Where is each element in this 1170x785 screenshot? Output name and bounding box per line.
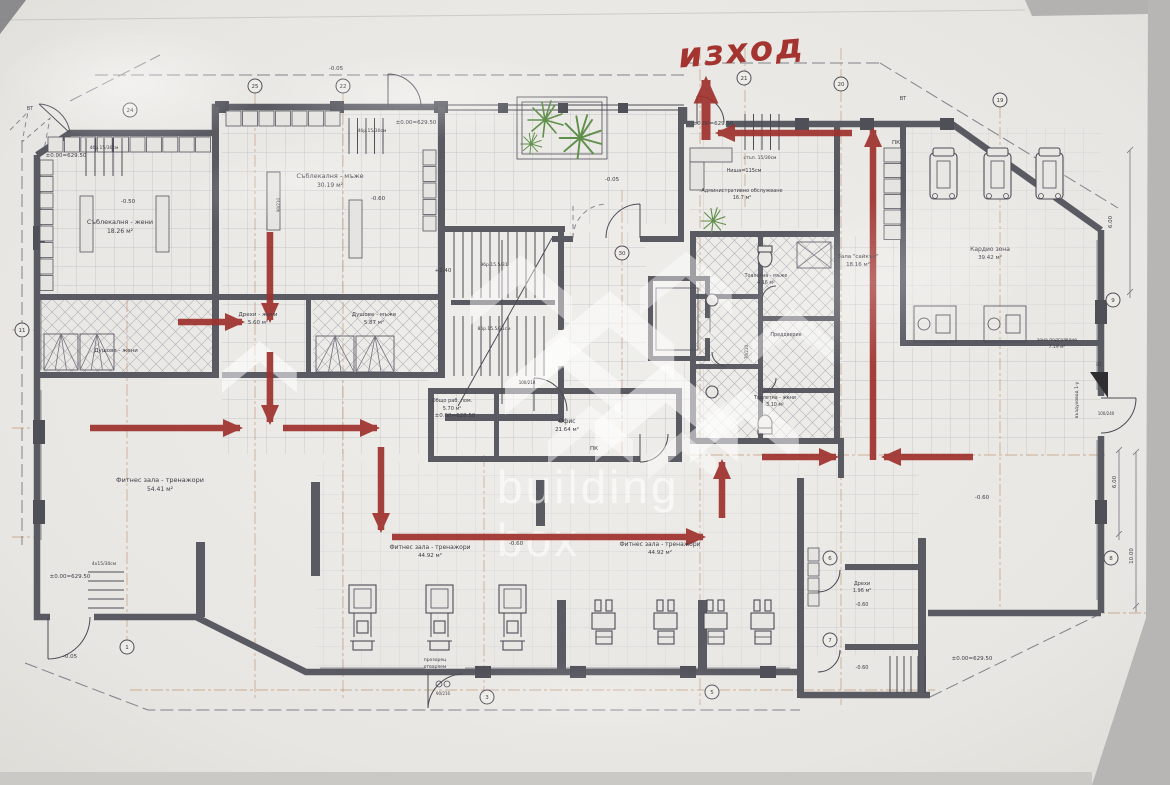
axis-bubble: 7 [823, 633, 837, 647]
locker-cell [808, 548, 819, 561]
locker-cell [40, 226, 53, 241]
bench [349, 200, 362, 258]
plan-label: ±0.00=628.50 [435, 413, 476, 419]
locker-cell [259, 111, 274, 126]
plan-label: 100/210 [519, 380, 536, 385]
plan-label: Душове - мъже [352, 312, 397, 318]
plan-label: 16.7 м² [733, 195, 752, 201]
locker-cell [243, 111, 258, 126]
axis-bubble-number: 7 [828, 638, 832, 644]
locker-cell [40, 193, 53, 208]
locker-cell [40, 160, 53, 175]
axis-bubble: 20 [834, 77, 848, 91]
locker-cell [423, 167, 436, 182]
plan-label: ПК [590, 446, 598, 452]
plan-label: Фитнес зала - тренажори [116, 476, 204, 484]
axis-bubble: 30 [615, 246, 629, 260]
plan-label: 100/240 [1098, 411, 1115, 416]
plan-label: 4х15/30см [92, 561, 116, 567]
plan-label: 8бр.15.5/31см [477, 326, 510, 332]
axis-bubble-number: 8 [1109, 556, 1113, 562]
plan-label: 5.70 м² [443, 406, 462, 412]
photo-background-edge [0, 772, 1092, 785]
plan-label: -0.05 [63, 654, 78, 660]
plan-label: стъп. 15/30см [744, 155, 777, 161]
plan-label: Дрехи - жени [239, 312, 278, 318]
plan-label: 9бр.15.5/31 [480, 262, 507, 268]
plan-label: 44.92 м² [418, 552, 442, 559]
plan-label: Ниша=115см [727, 168, 762, 174]
photo-background-edge [1025, 0, 1148, 16]
plan-label: Общо раб. пом. [432, 398, 473, 404]
plan-label: 10.00 [1129, 548, 1135, 564]
locker-cell [423, 200, 436, 215]
plan-label: 3.10 м² [766, 402, 784, 408]
locker-cell [808, 593, 819, 606]
plan-label: прозорец [424, 658, 446, 663]
axis-bubble: 6 [823, 551, 837, 565]
plan-label: ±0.00=629.50 [50, 574, 91, 580]
axis-bubble-number: 9 [1111, 298, 1115, 304]
plan-label: 54.41 м² [147, 486, 174, 493]
plan-label: Административно обслужване [701, 188, 782, 194]
plan-label: 18.26 м² [107, 228, 134, 235]
plan-label: 7.19 м² [1049, 344, 1066, 350]
axis-bubble: 1 [120, 640, 134, 654]
plan-label: -0.60 [975, 495, 990, 501]
axis-bubble: 21 [737, 71, 751, 85]
plan-label: 6.00 [1112, 475, 1118, 488]
watermark-text-line1: building [497, 461, 680, 513]
plan-label: Тоалетна - жени [753, 395, 796, 401]
locker-cell [48, 137, 63, 152]
locker-cell [40, 276, 53, 291]
locker-cell [196, 137, 211, 152]
plan-label: -0.50 [121, 199, 136, 205]
plan-label: -0.60 [856, 665, 869, 671]
plan-label: ±0.00=629.50 [693, 121, 734, 127]
floor-plan-photo: building box изход Съблекалня - жени18.2… [0, 0, 1170, 785]
locker-cell [808, 563, 819, 576]
locker-cell [40, 243, 53, 258]
plan-label: 1.96 м² [853, 588, 872, 594]
axis-bubble: 11 [15, 323, 29, 337]
axis-bubble-number: 21 [741, 76, 748, 82]
plan-label: Душове - жени [94, 348, 138, 354]
plan-label: ПК [892, 140, 900, 146]
plan-label: зона подгряване [1037, 338, 1077, 343]
axis-bubble: 19 [993, 93, 1007, 107]
plan-label: ±0.00=629.50 [46, 153, 87, 159]
plan-label: 6.00 [1108, 215, 1114, 228]
plan-label: 5.60 м² [248, 319, 268, 326]
plan-label: Фитнес зала - тренажори [389, 544, 470, 551]
locker-cell [884, 164, 901, 178]
bench [156, 196, 169, 252]
locker-cell [40, 259, 53, 274]
axis-bubble-number: 11 [19, 328, 26, 334]
locker-cell [884, 148, 901, 162]
plan-label: ±0.00=629.50 [952, 656, 993, 662]
plan-label: 44.92 м² [648, 549, 672, 556]
plan-label: Дрехи [854, 581, 870, 587]
plan-label: въздуховод 1-у [1074, 381, 1080, 418]
plan-label: 5.87 м² [364, 319, 384, 326]
plan-label: ВТ [900, 96, 907, 102]
locker-cell [884, 179, 901, 193]
plan-label: Офис [558, 418, 575, 425]
locker-cell [423, 216, 436, 231]
plan-label: +1.40 [435, 268, 452, 274]
axis-bubble-number: 6 [828, 556, 832, 562]
locker-cell [808, 578, 819, 591]
axis-bubble: 9 [1106, 293, 1120, 307]
plan-label: отваряем [424, 665, 447, 670]
plan-label: -0.60 [856, 602, 869, 608]
axis-bubble-number: 20 [838, 82, 845, 88]
axis-bubble: 8 [1104, 551, 1118, 565]
plan-label: -0.60 [509, 541, 524, 547]
plan-label: ВТ [1096, 362, 1102, 368]
locker-cell [40, 210, 53, 225]
locker-cell [40, 177, 53, 192]
plan-label: -0.05 [605, 177, 620, 183]
locker-cell [423, 183, 436, 198]
axis-bubble-number: 1 [125, 645, 129, 651]
plan-label: Фитнес зала - тренажори [619, 541, 700, 548]
locker-cell [423, 150, 436, 165]
floor-plan-svg: building box изход Съблекалня - жени18.2… [0, 0, 1170, 785]
plan-label: 4бр.15/30см [90, 145, 119, 151]
axis-bubble-number: 19 [997, 98, 1004, 104]
plan-label: Съблекалня - жени [87, 218, 153, 226]
axis-bubble-number: 30 [619, 251, 626, 257]
plan-label: 21.64 м² [555, 426, 579, 433]
